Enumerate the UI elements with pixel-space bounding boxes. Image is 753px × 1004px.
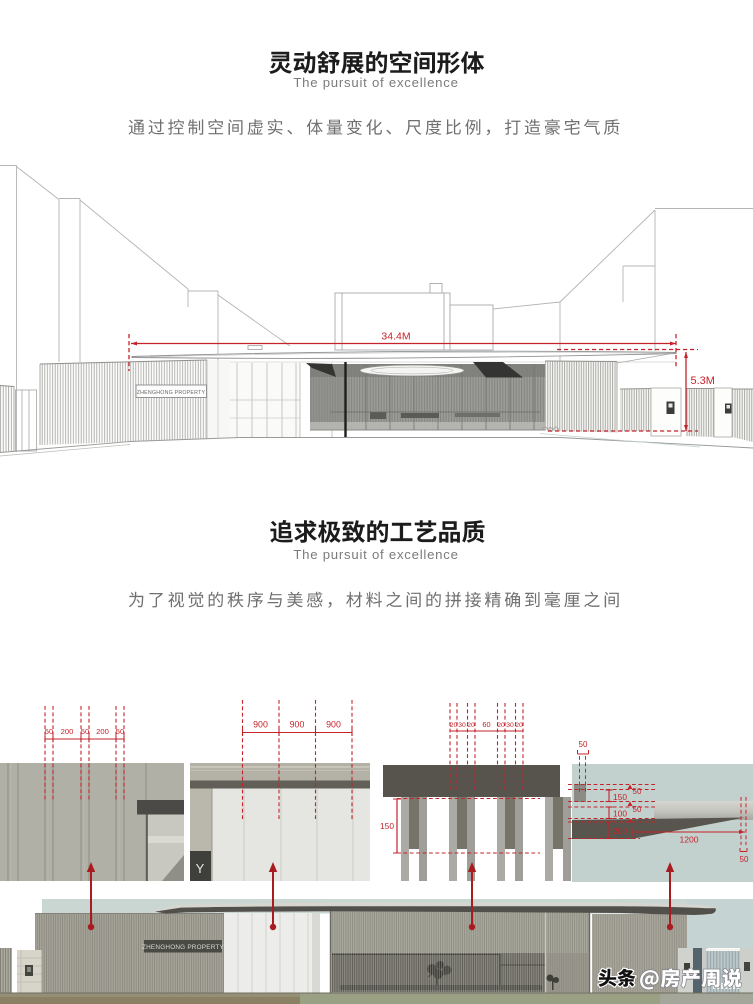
svg-text:50: 50 (81, 727, 89, 736)
svg-text:The pursuit of excellence: The pursuit of excellence (293, 75, 458, 90)
svg-text:150: 150 (613, 792, 627, 802)
svg-text:900: 900 (326, 720, 341, 730)
svg-text:100: 100 (613, 809, 627, 819)
svg-text:5.3M: 5.3M (691, 375, 715, 387)
svg-text:ZHENGHONG PROPERTY: ZHENGHONG PROPERTY (137, 390, 206, 396)
svg-text:50: 50 (740, 855, 749, 864)
svg-text:50: 50 (45, 727, 53, 736)
svg-text:50: 50 (116, 727, 124, 736)
svg-text:30: 30 (458, 722, 466, 729)
svg-text:50: 50 (633, 787, 642, 796)
svg-text:50: 50 (633, 805, 642, 814)
svg-text:60: 60 (482, 720, 490, 729)
svg-text:The pursuit of excellence: The pursuit of excellence (293, 547, 458, 562)
svg-text:900: 900 (290, 720, 305, 730)
svg-text:30: 30 (506, 722, 514, 729)
svg-text:20: 20 (467, 722, 475, 729)
svg-text:50: 50 (579, 740, 588, 749)
svg-text:Y: Y (196, 861, 205, 876)
svg-text:34.4M: 34.4M (381, 331, 410, 343)
svg-text:20: 20 (450, 722, 458, 729)
svg-text:ZHENGHONG PROPERTY: ZHENGHONG PROPERTY (142, 944, 224, 951)
svg-text:200: 200 (613, 826, 627, 836)
svg-text:150: 150 (380, 821, 394, 831)
svg-text:900: 900 (253, 720, 268, 730)
svg-text:1200: 1200 (679, 835, 698, 845)
svg-text:20: 20 (515, 722, 523, 729)
svg-text:200: 200 (61, 727, 74, 736)
svg-text:200: 200 (96, 727, 109, 736)
svg-text:20: 20 (497, 722, 505, 729)
